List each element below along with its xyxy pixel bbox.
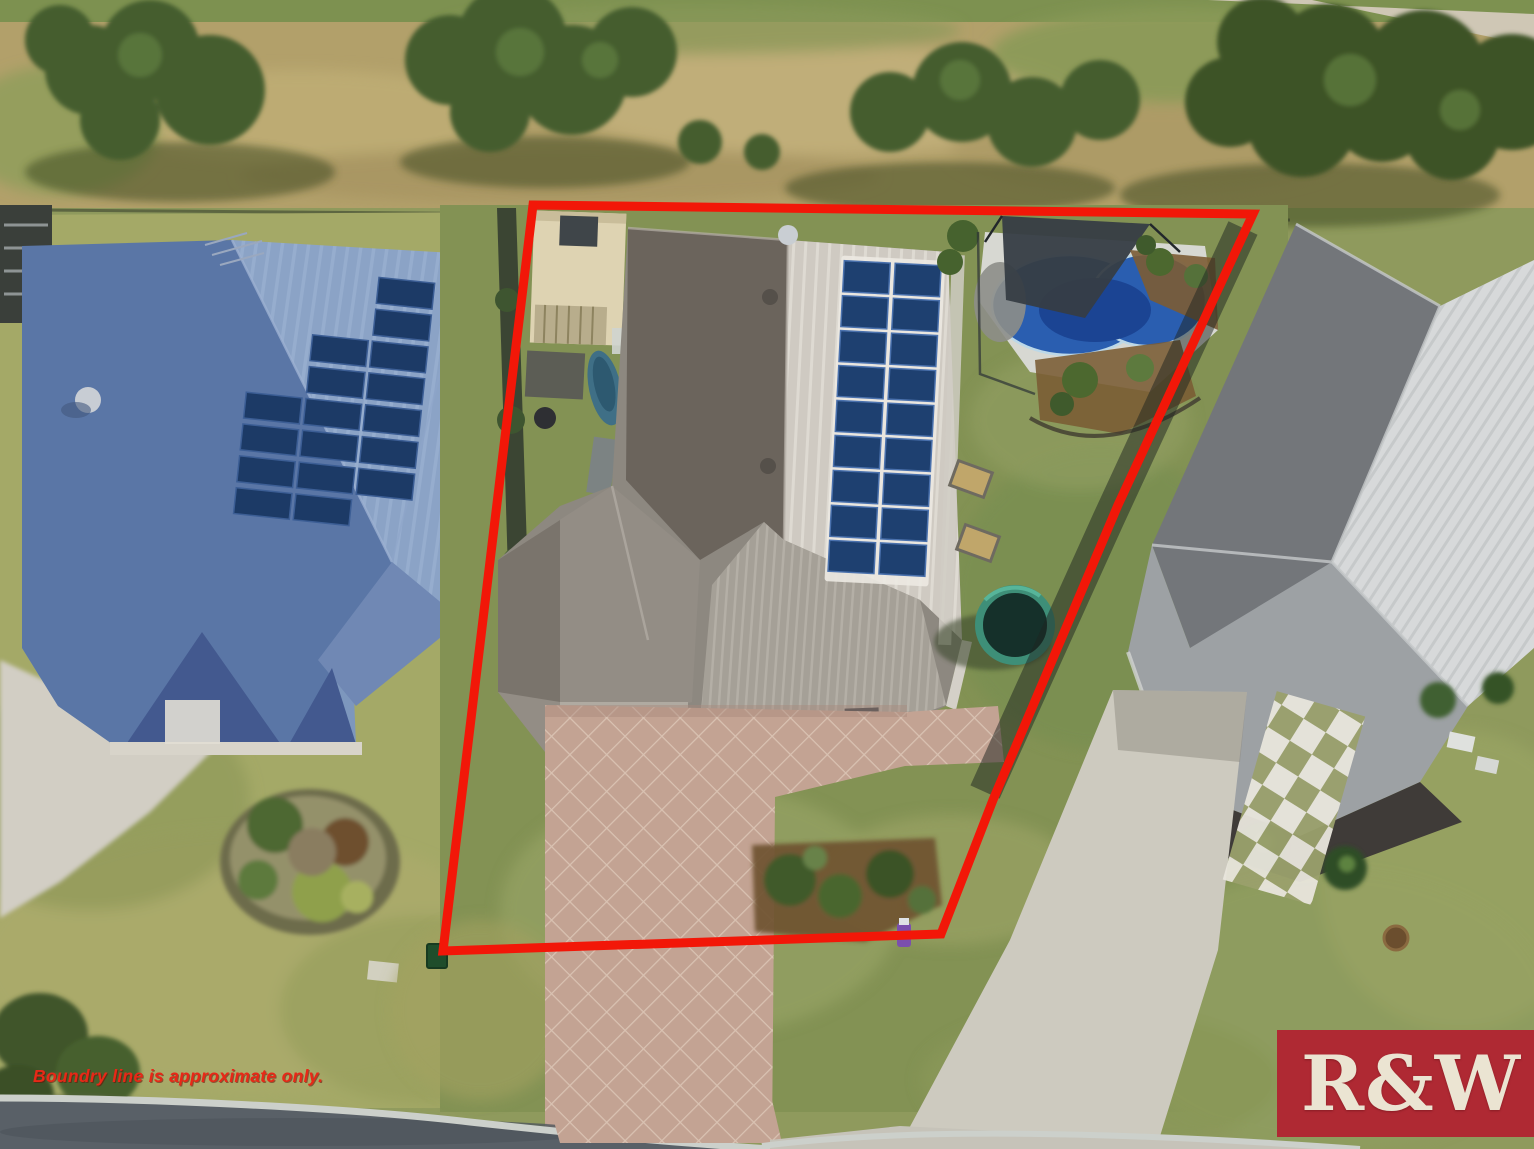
satellite-dish (778, 225, 798, 245)
patio-table (525, 351, 585, 400)
entry-porch (165, 700, 220, 744)
shed (530, 211, 627, 346)
driveway-apron (548, 1100, 782, 1143)
roof-vent (760, 458, 776, 474)
roof-vent (762, 289, 778, 305)
shed-skylight (559, 215, 598, 246)
subject-solar-array (824, 256, 945, 587)
aerial-photo: Boundry line is approximate only. R&W (0, 0, 1534, 1149)
agency-logo-text: R&W (1277, 1046, 1521, 1122)
garden-island (220, 789, 400, 935)
agency-logo: R&W (1277, 1030, 1534, 1137)
garden-pot (1384, 926, 1408, 950)
boundary-disclaimer-text: Boundry line is approximate only. (33, 1066, 323, 1087)
scene-painting (0, 0, 1534, 1149)
eave-gutter (110, 742, 362, 755)
bbq (534, 407, 556, 429)
